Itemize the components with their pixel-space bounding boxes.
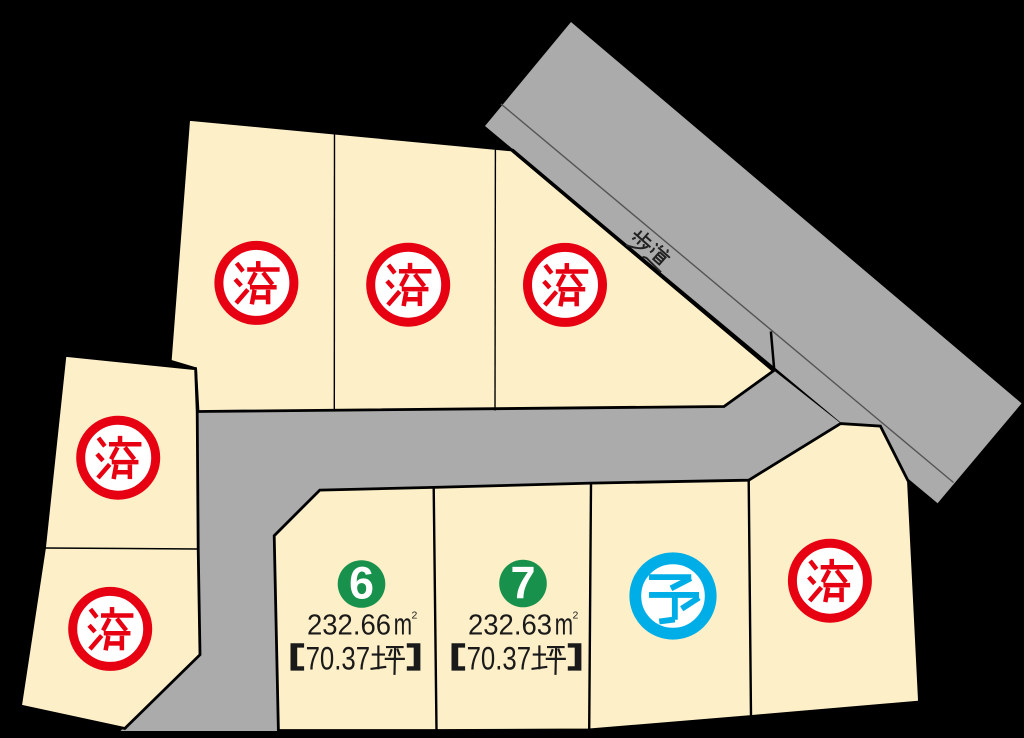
svg-text:2: 2: [412, 610, 418, 622]
svg-text:232.66: 232.66: [307, 609, 391, 641]
svg-text:2: 2: [573, 610, 579, 622]
svg-text:70.37: 70.37: [467, 641, 531, 677]
svg-text:m: m: [555, 606, 574, 641]
svg-text:232.63: 232.63: [468, 609, 552, 641]
svg-text:70.37: 70.37: [306, 641, 371, 677]
svg-text:6: 6: [349, 558, 374, 609]
svg-text:m: m: [394, 606, 413, 641]
svg-text:7: 7: [510, 557, 535, 608]
